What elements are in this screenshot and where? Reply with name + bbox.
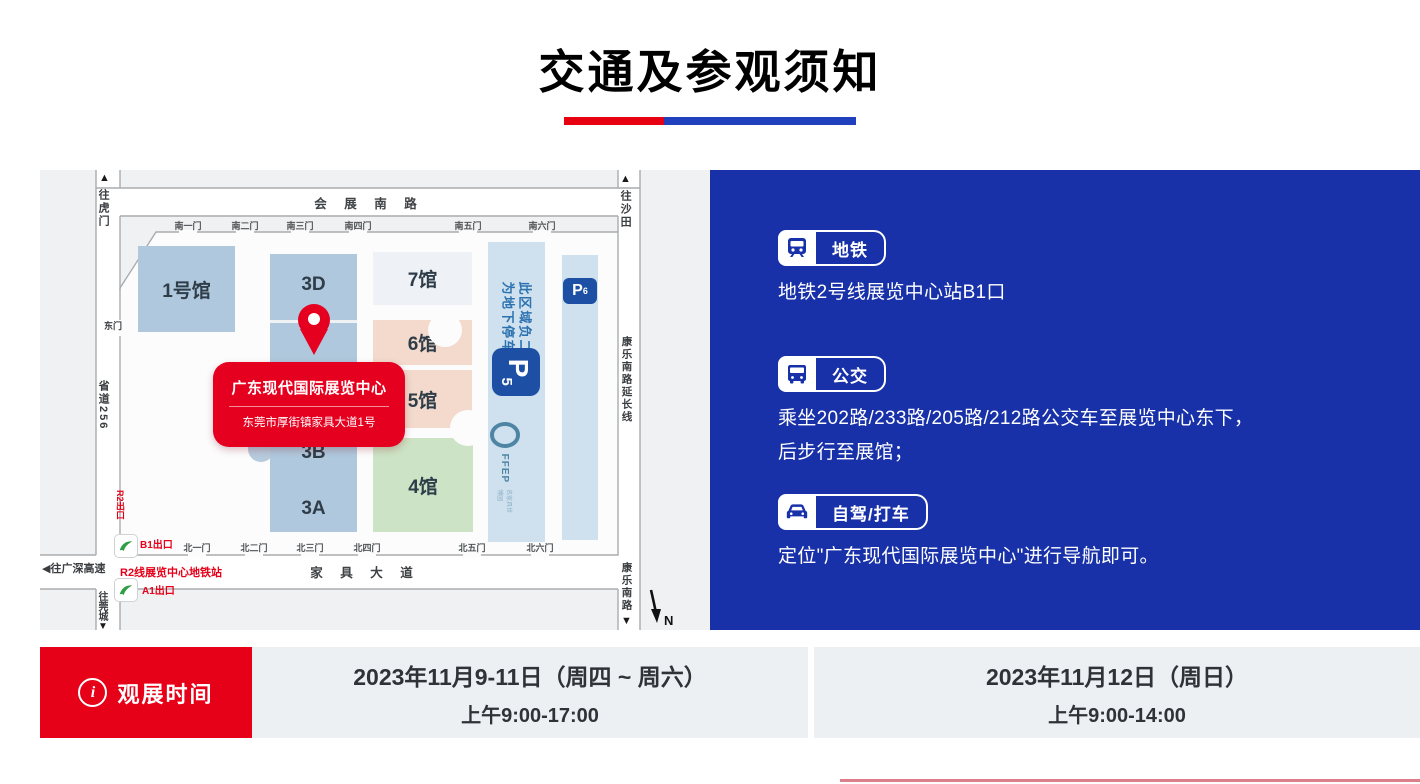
- schedule-header: i 观展时间: [40, 647, 252, 738]
- schedule-session-1: 2023年11月9-11日（周四 ~ 周六） 上午9:00-17:00: [252, 647, 808, 738]
- gate-north-6: 北六门: [522, 541, 558, 554]
- transport-item-bus: 公交 乘坐202路/233路/205路/212路公交车至展览中心东下， 后步行至…: [778, 356, 1253, 466]
- car-label: 自驾/打车: [816, 494, 928, 530]
- location-pin-icon: [296, 303, 332, 364]
- venue-address: 东莞市厚街镇家具大道1号: [213, 414, 405, 430]
- map-decor-circle: [450, 410, 486, 446]
- road-kangle-extension: 康乐南路延长线: [620, 336, 632, 424]
- ffep-ring-icon: [490, 422, 520, 448]
- compass-n-label: N: [664, 613, 673, 628]
- metro-text: 地铁2号线展览中心站B1口: [778, 279, 1006, 307]
- hall-1: 1号馆: [138, 246, 235, 332]
- bus-text-line1: 乘坐202路/233路/205路/212路公交车至展览中心东下，: [778, 405, 1253, 433]
- page: 交通及参观须知: [0, 0, 1420, 784]
- gate-north-1: 北一门: [179, 541, 215, 554]
- gate-north-2: 北二门: [236, 541, 272, 554]
- venue-map: ▲ 往虎门 省道256 东门 会 展 南 路 家 具 大 道 ▲ 往沙田 康乐南…: [40, 170, 710, 630]
- hall-4: 4馆: [373, 438, 473, 532]
- gate-east-label: 东门: [104, 322, 122, 332]
- schedule-label: 观展时间: [117, 677, 213, 709]
- gate-south-3: 南三门: [282, 219, 318, 232]
- parking-p5-badge: P5: [492, 348, 540, 396]
- underline-blue-segment: [664, 117, 856, 125]
- map-decor-circle: [428, 313, 462, 347]
- gate-north-3: 北三门: [292, 541, 328, 554]
- session-2-date: 2023年11月12日（周日）: [986, 658, 1248, 692]
- gate-south-5: 南五门: [450, 219, 486, 232]
- underline-red-segment: [564, 117, 664, 125]
- bus-badge: 公交: [778, 356, 1253, 392]
- metro-icon: [778, 230, 816, 266]
- metro-logo-icon: [114, 578, 138, 602]
- guancheng-arrow-icon: ▼: [98, 622, 108, 632]
- metro-exit-b1: B1出口: [140, 536, 173, 551]
- transport-item-car: 自驾/打车 定位"广东现代国际展览中心"进行导航即可。: [778, 494, 1159, 571]
- road-provincial-256: 省道256: [97, 380, 109, 430]
- gate-south-6: 南六门: [524, 219, 560, 232]
- venue-callout: 广东现代国际展览中心 东莞市厚街镇家具大道1号: [213, 362, 405, 447]
- metro-logo-icon: [114, 534, 138, 558]
- bottom-red-strip: [840, 779, 1420, 782]
- kangle-arrow-icon: ▼: [621, 616, 632, 627]
- car-icon: [778, 494, 816, 530]
- metro-exit-a1: A1出口: [142, 582, 175, 597]
- gate-south-2: 南二门: [227, 219, 263, 232]
- road-kangle: 康乐南路: [620, 562, 632, 612]
- schedule-session-2: 2023年11月12日（周日） 上午9:00-14:00: [814, 647, 1420, 738]
- gate-north-4: 北四门: [349, 541, 385, 554]
- shatian-arrow-icon: ▲: [620, 174, 631, 185]
- metro-label: 地铁: [816, 230, 886, 266]
- bus-label: 公交: [816, 356, 886, 392]
- session-1-date: 2023年11月9-11日（周四 ~ 周六）: [353, 658, 706, 692]
- info-icon: i: [78, 678, 107, 707]
- direction-humen: 往虎门: [97, 189, 109, 228]
- bus-text-line2: 后步行至展馆；: [778, 439, 1253, 467]
- car-text: 定位"广东现代国际展览中心"进行导航即可。: [778, 543, 1159, 571]
- hall-7: 7馆: [373, 252, 472, 305]
- north-arrow-icon: ▲: [99, 173, 110, 184]
- gate-north-5: 北五门: [454, 541, 490, 554]
- transport-panel: 地铁 地铁2号线展览中心站B1口 公交 乘坐202路/233路/205路/212…: [710, 170, 1420, 630]
- road-exhibition-south: 会 展 南 路: [120, 193, 618, 212]
- title-block: 交通及参观须知: [0, 0, 1420, 125]
- parking-p6-badge: P6: [563, 278, 597, 304]
- compass: N: [640, 588, 682, 630]
- transport-item-metro: 地铁 地铁2号线展览中心站B1口: [778, 230, 1006, 307]
- session-1-time: 上午9:00-17:00: [461, 699, 599, 728]
- gate-south-4: 南四门: [340, 219, 376, 232]
- gate-south-1: 南一门: [170, 219, 206, 232]
- bus-icon: [778, 356, 816, 392]
- direction-shatian: 往沙田: [619, 190, 631, 229]
- schedule-bar: i 观展时间 2023年11月9-11日（周四 ~ 周六） 上午9:00-17:…: [40, 647, 1420, 738]
- direction-guangshen: ◀往广深高速: [42, 563, 105, 575]
- hall-3a-label: 3A: [270, 498, 357, 520]
- metro-badge: 地铁: [778, 230, 1006, 266]
- page-title: 交通及参观须知: [539, 36, 882, 102]
- metro-exit-r2: R2出口: [114, 490, 127, 520]
- callout-divider: [229, 406, 389, 407]
- hall-3d-label: 3D: [270, 274, 357, 296]
- session-2-time: 上午9:00-14:00: [1048, 699, 1186, 728]
- title-underline: [564, 117, 856, 125]
- ffep-logo: FFEP 名家具世博园: [488, 422, 522, 518]
- venue-name: 广东现代国际展览中心: [213, 377, 405, 398]
- car-badge: 自驾/打车: [778, 494, 1159, 530]
- direction-guancheng: 往莞城: [96, 591, 107, 621]
